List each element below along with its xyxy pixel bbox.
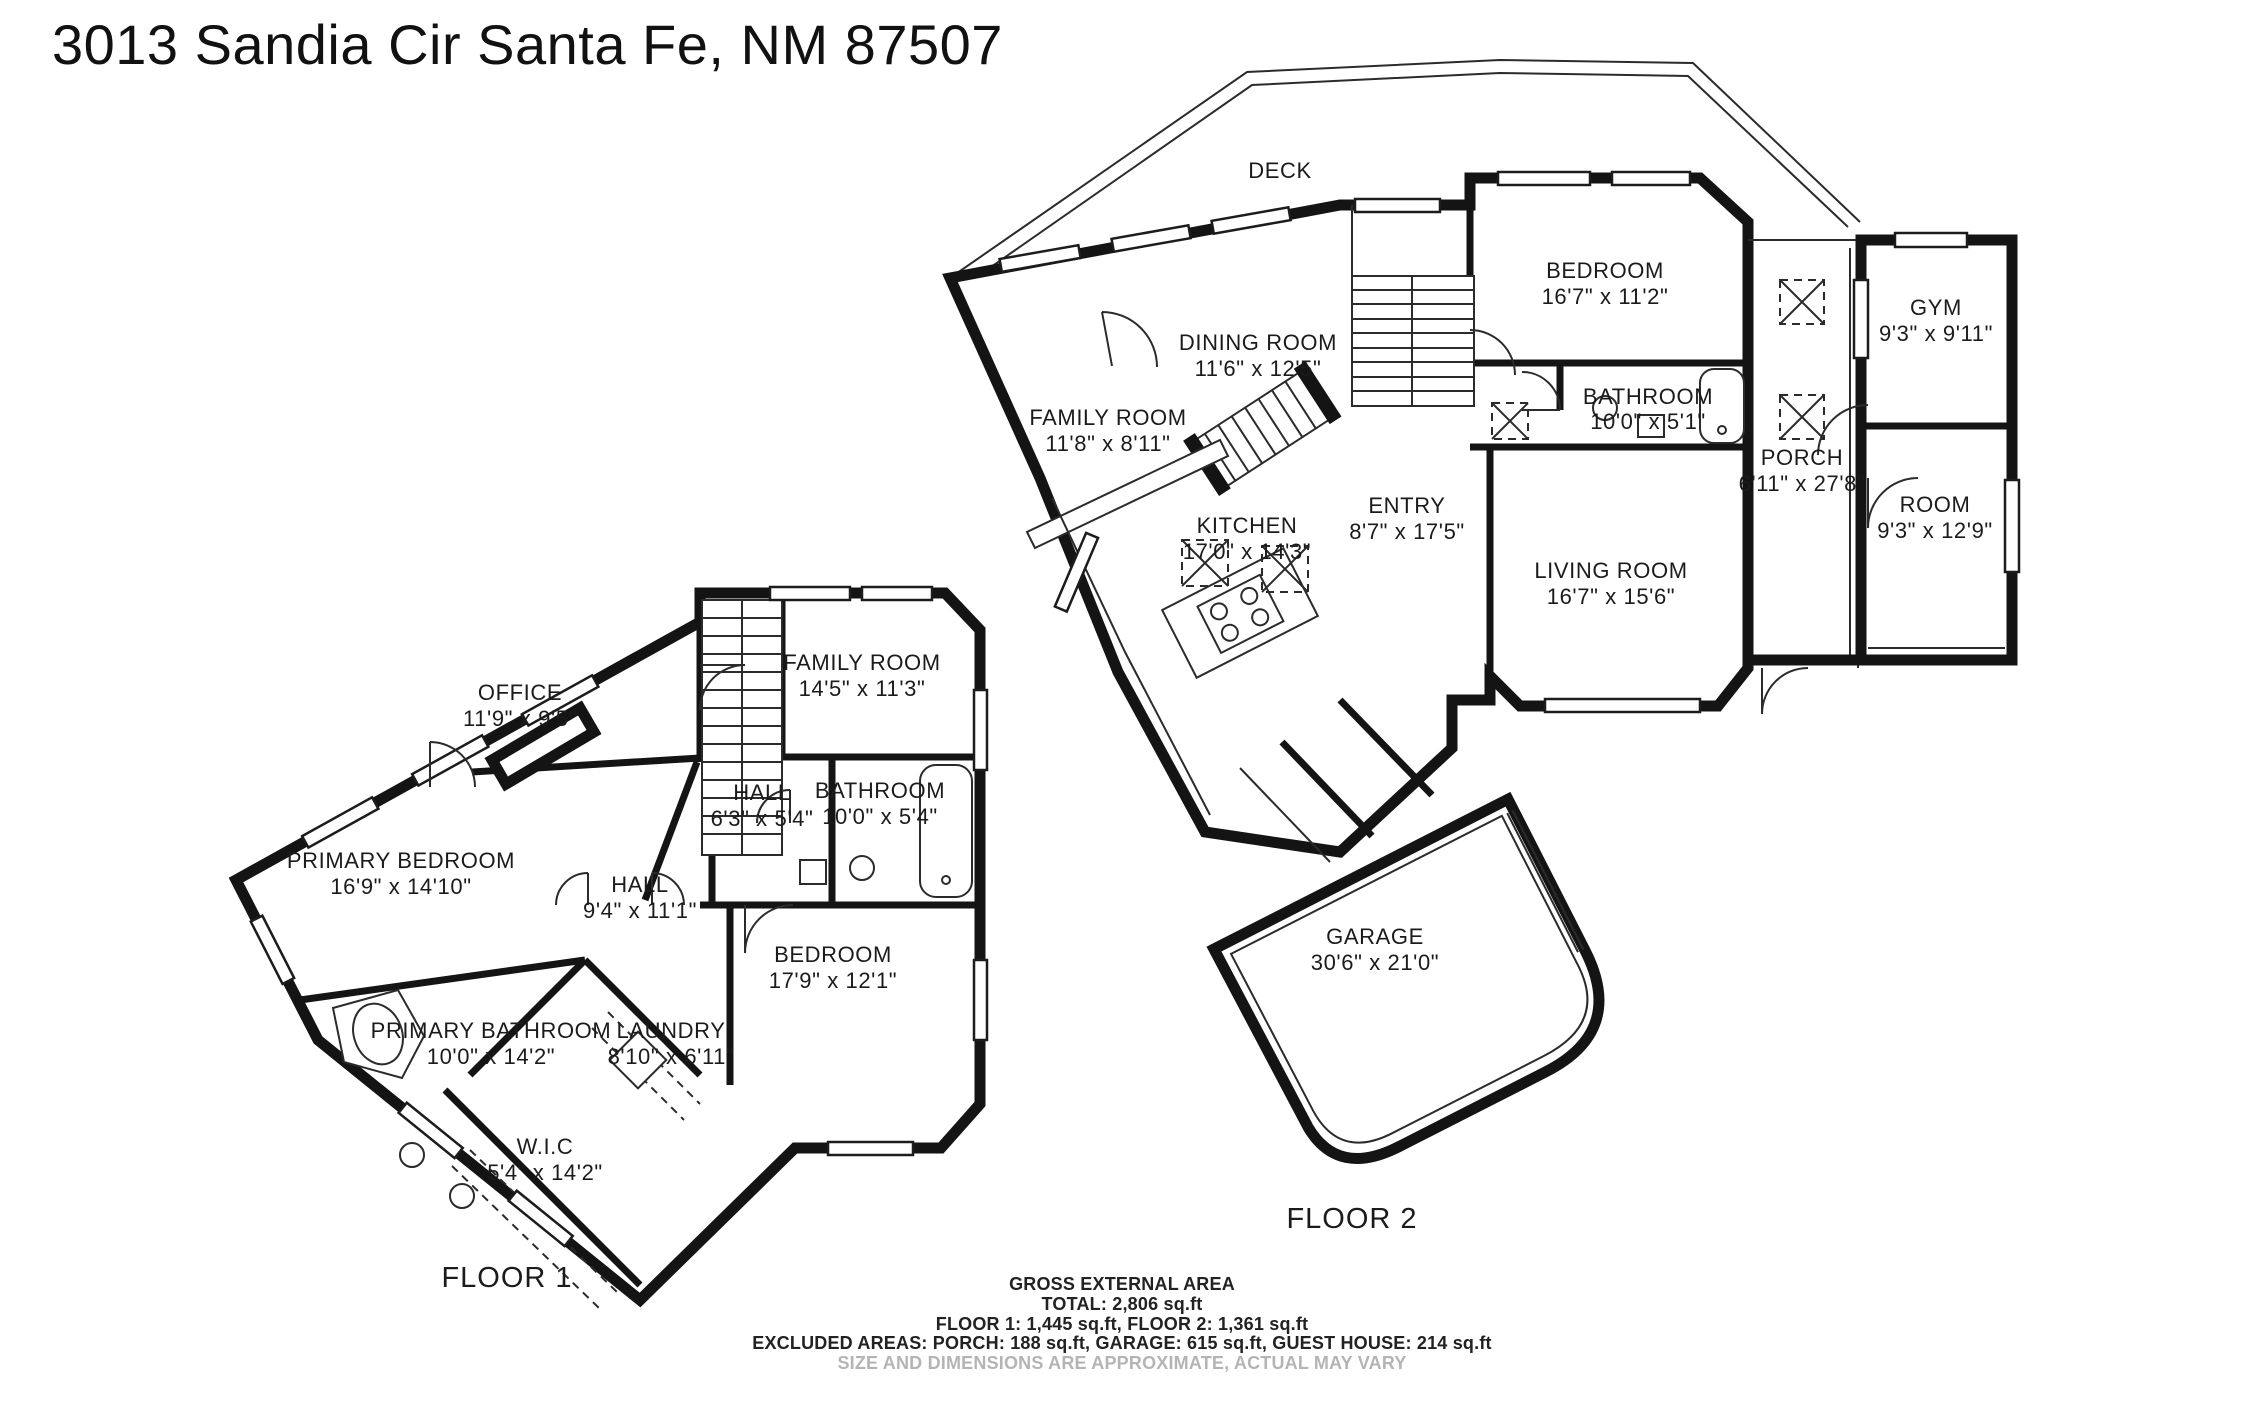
room-label-family1: FAMILY ROOM	[783, 650, 940, 675]
room-dims-bathroom1: 10'0" x 5'4"	[822, 804, 938, 829]
room-label-bathroom2: BATHROOM	[1583, 384, 1713, 409]
floor2-plan: DECK FAMILY ROOM 11'8" x 8'11" DINING RO…	[950, 60, 2019, 1235]
floorplan-canvas: 3013 Sandia Cir Santa Fe, NM 87507	[0, 0, 2245, 1402]
room-dims-primary-bathroom: 10'0" x 14'2"	[427, 1044, 555, 1069]
room-label-entry: ENTRY	[1368, 493, 1445, 518]
footer-area-summary: GROSS EXTERNAL AREA TOTAL: 2,806 sq.ft F…	[752, 1274, 1491, 1373]
toilet-floor1	[800, 860, 826, 884]
room-dims-bedroom2: 16'7" x 11'2"	[1542, 284, 1669, 309]
gym-side-window	[1854, 280, 1868, 358]
porch-door-arc	[1762, 668, 1808, 714]
footer-line3: FLOOR 1: 1,445 sq.ft, FLOOR 2: 1,361 sq.…	[936, 1314, 1308, 1334]
room-dims-bathroom2: 10'0" x 5'1"	[1590, 409, 1706, 434]
room-label-deck: DECK	[1248, 158, 1312, 183]
room-label-hall-small: HALL	[733, 780, 790, 805]
room-dims-family1: 14'5" x 11'3"	[799, 676, 926, 701]
room-label-bedroom1: BEDROOM	[774, 942, 892, 967]
room-label-bathroom1: BATHROOM	[815, 778, 945, 803]
garage-block	[1214, 799, 1626, 1180]
room-dims-room: 9'3" x 12'9"	[1877, 518, 1993, 543]
room-dims-entry: 8'7" x 17'5"	[1349, 519, 1465, 544]
room-label-bedroom2: BEDROOM	[1546, 258, 1664, 283]
room-dims-kitchen: 17'0" x 14'3"	[1183, 539, 1311, 564]
room-window	[2005, 480, 2019, 572]
room-label-gym: GYM	[1910, 295, 1962, 320]
room-dims-gym: 9'3" x 9'11"	[1879, 321, 1993, 346]
room-label-laundry: LAUNDRY	[617, 1018, 726, 1043]
porch-column-symbol	[1780, 280, 1824, 439]
floorplan-page: 3013 Sandia Cir Santa Fe, NM 87507	[0, 0, 2245, 1402]
room-label-living: LIVING ROOM	[1534, 558, 1687, 583]
footer-disclaimer: SIZE AND DIMENSIONS ARE APPROXIMATE, ACT…	[837, 1353, 1406, 1373]
room-label-porch: PORCH	[1761, 445, 1843, 470]
footer-line2: TOTAL: 2,806 sq.ft	[1042, 1294, 1203, 1314]
room-dims-office: 11'9" x 9'5"	[463, 706, 577, 731]
gym-window	[1895, 233, 1967, 247]
room-label-dining: DINING ROOM	[1179, 330, 1337, 355]
room-dims-hall: 9'4" x 11'1"	[583, 898, 697, 923]
room-label-family2: FAMILY ROOM	[1029, 405, 1186, 430]
room-dims-bedroom1: 17'9" x 12'1"	[769, 968, 897, 993]
room-label-primary-bathroom: PRIMARY BATHROOM	[371, 1018, 612, 1043]
room-dims-family2: 11'8" x 8'11"	[1045, 431, 1170, 456]
room-dims-laundry: 8'10" x 6'11"	[608, 1044, 735, 1069]
room-dims-primary-bedroom: 16'9" x 14'10"	[330, 874, 471, 899]
room-dims-garage: 30'6" x 21'0"	[1311, 950, 1439, 975]
floor2-caption: FLOOR 2	[1286, 1203, 1417, 1235]
room-label-wic: W.I.C	[517, 1134, 574, 1159]
room-dims-porch: 6'11" x 27'8"	[1739, 471, 1866, 496]
floor1-caption: FLOOR 1	[441, 1262, 572, 1294]
room-label-room: ROOM	[1900, 492, 1971, 517]
room-label-primary-bedroom: PRIMARY BEDROOM	[287, 848, 515, 873]
room-dims-dining: 11'6" x 12'5"	[1195, 356, 1322, 381]
staircase-floor2	[1352, 276, 1474, 406]
room-dims-living: 16'7" x 15'6"	[1547, 584, 1675, 609]
room-label-office: OFFICE	[478, 680, 562, 705]
room-dims-hall-small: 6'3" x 5'4"	[711, 806, 814, 831]
page-title: 3013 Sandia Cir Santa Fe, NM 87507	[52, 13, 1003, 76]
footer-line4: EXCLUDED AREAS: PORCH: 188 sq.ft, GARAGE…	[752, 1333, 1491, 1353]
floor1-plan: OFFICE 11'9" x 9'5" PRIMARY BEDROOM 16'9…	[236, 587, 987, 1309]
room-label-kitchen: KITCHEN	[1197, 513, 1298, 538]
room-label-hall: HALL	[611, 872, 668, 897]
room-dims-wic: 5'4" x 14'2"	[487, 1160, 603, 1185]
footer-line1: GROSS EXTERNAL AREA	[1009, 1274, 1235, 1294]
room-label-garage: GARAGE	[1326, 924, 1424, 949]
